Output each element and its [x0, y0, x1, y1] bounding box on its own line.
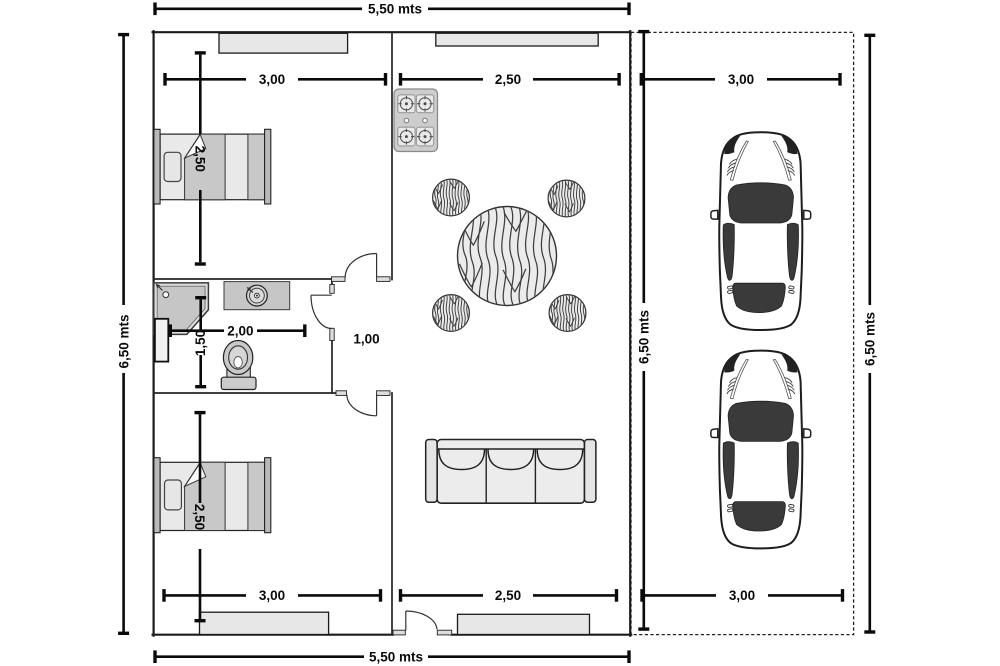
svg-text:1,50: 1,50: [193, 330, 208, 356]
svg-text:3,00: 3,00: [728, 72, 754, 87]
svg-text:3,00: 3,00: [729, 588, 755, 603]
svg-text:5,50 mts: 5,50 mts: [368, 2, 422, 17]
svg-text:2,50: 2,50: [495, 72, 521, 87]
svg-text:6,50 mts: 6,50 mts: [637, 310, 652, 364]
svg-text:1,00: 1,00: [353, 332, 379, 347]
svg-text:2,50: 2,50: [495, 588, 521, 603]
svg-text:5,50 mts: 5,50 mts: [369, 649, 423, 664]
svg-text:3,00: 3,00: [259, 588, 285, 603]
svg-text:6,50 mts: 6,50 mts: [863, 312, 878, 366]
svg-text:6,50 mts: 6,50 mts: [116, 314, 131, 368]
svg-text:3,00: 3,00: [259, 72, 285, 87]
svg-text:2,50: 2,50: [192, 504, 207, 530]
svg-text:2,50: 2,50: [192, 146, 207, 172]
svg-text:2,00: 2,00: [227, 323, 253, 338]
